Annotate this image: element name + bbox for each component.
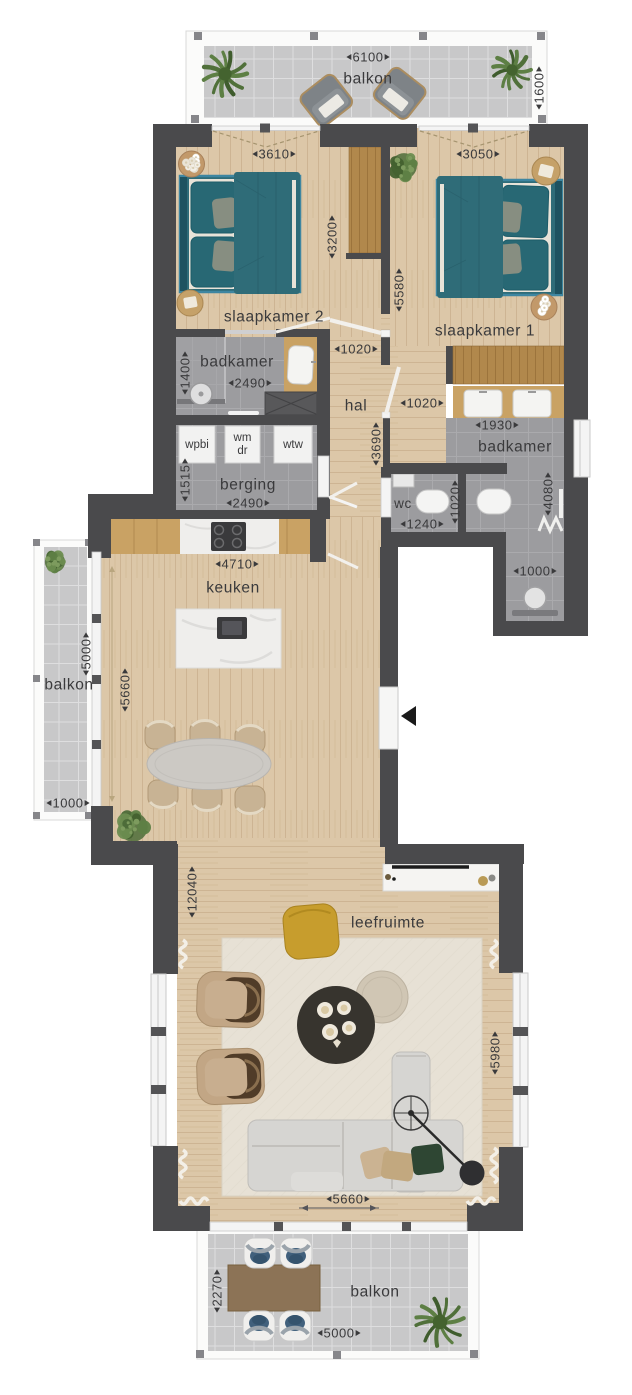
svg-text:wtw: wtw (282, 439, 304, 451)
svg-text:5660: 5660 (118, 675, 133, 706)
svg-text:badkamer: badkamer (478, 439, 552, 456)
svg-text:dr: dr (237, 445, 247, 457)
svg-text:1000: 1000 (53, 796, 84, 811)
svg-text:4080: 4080 (541, 479, 556, 510)
svg-text:1240: 1240 (407, 517, 438, 532)
svg-text:5000: 5000 (79, 639, 94, 670)
svg-text:wm: wm (233, 432, 252, 444)
svg-text:balkon: balkon (44, 677, 93, 694)
svg-text:1000: 1000 (520, 564, 551, 579)
svg-text:wc: wc (393, 496, 412, 511)
svg-text:5980: 5980 (488, 1038, 503, 1069)
svg-text:5000: 5000 (324, 1326, 355, 1341)
svg-text:5660: 5660 (333, 1192, 364, 1207)
svg-text:1600: 1600 (532, 73, 547, 104)
svg-text:3690: 3690 (369, 429, 384, 460)
svg-text:1515: 1515 (178, 465, 193, 496)
svg-text:2490: 2490 (233, 496, 264, 511)
svg-text:5580: 5580 (392, 275, 407, 306)
svg-text:slaapkamer 2: slaapkamer 2 (224, 309, 324, 326)
svg-text:balkon: balkon (343, 71, 392, 88)
svg-text:badkamer: badkamer (200, 354, 274, 371)
svg-text:1020: 1020 (341, 342, 372, 357)
svg-text:1020: 1020 (407, 396, 438, 411)
svg-text:keuken: keuken (206, 580, 260, 597)
svg-text:wpbi: wpbi (184, 439, 209, 451)
svg-text:2270: 2270 (210, 1276, 225, 1307)
svg-text:3200: 3200 (325, 222, 340, 253)
svg-text:3050: 3050 (463, 147, 494, 162)
svg-text:hal: hal (345, 398, 367, 415)
svg-text:balkon: balkon (350, 1284, 399, 1301)
svg-text:1930: 1930 (482, 418, 513, 433)
svg-text:12040: 12040 (185, 873, 200, 912)
svg-text:berging: berging (220, 477, 276, 494)
svg-text:6100: 6100 (353, 50, 384, 65)
svg-text:4710: 4710 (222, 557, 253, 572)
svg-text:1400: 1400 (178, 358, 193, 389)
svg-text:leefruimte: leefruimte (351, 915, 425, 932)
svg-text:2490: 2490 (235, 376, 266, 391)
svg-text:1020: 1020 (448, 487, 463, 518)
svg-text:slaapkamer 1: slaapkamer 1 (435, 323, 535, 340)
svg-text:3610: 3610 (259, 147, 290, 162)
